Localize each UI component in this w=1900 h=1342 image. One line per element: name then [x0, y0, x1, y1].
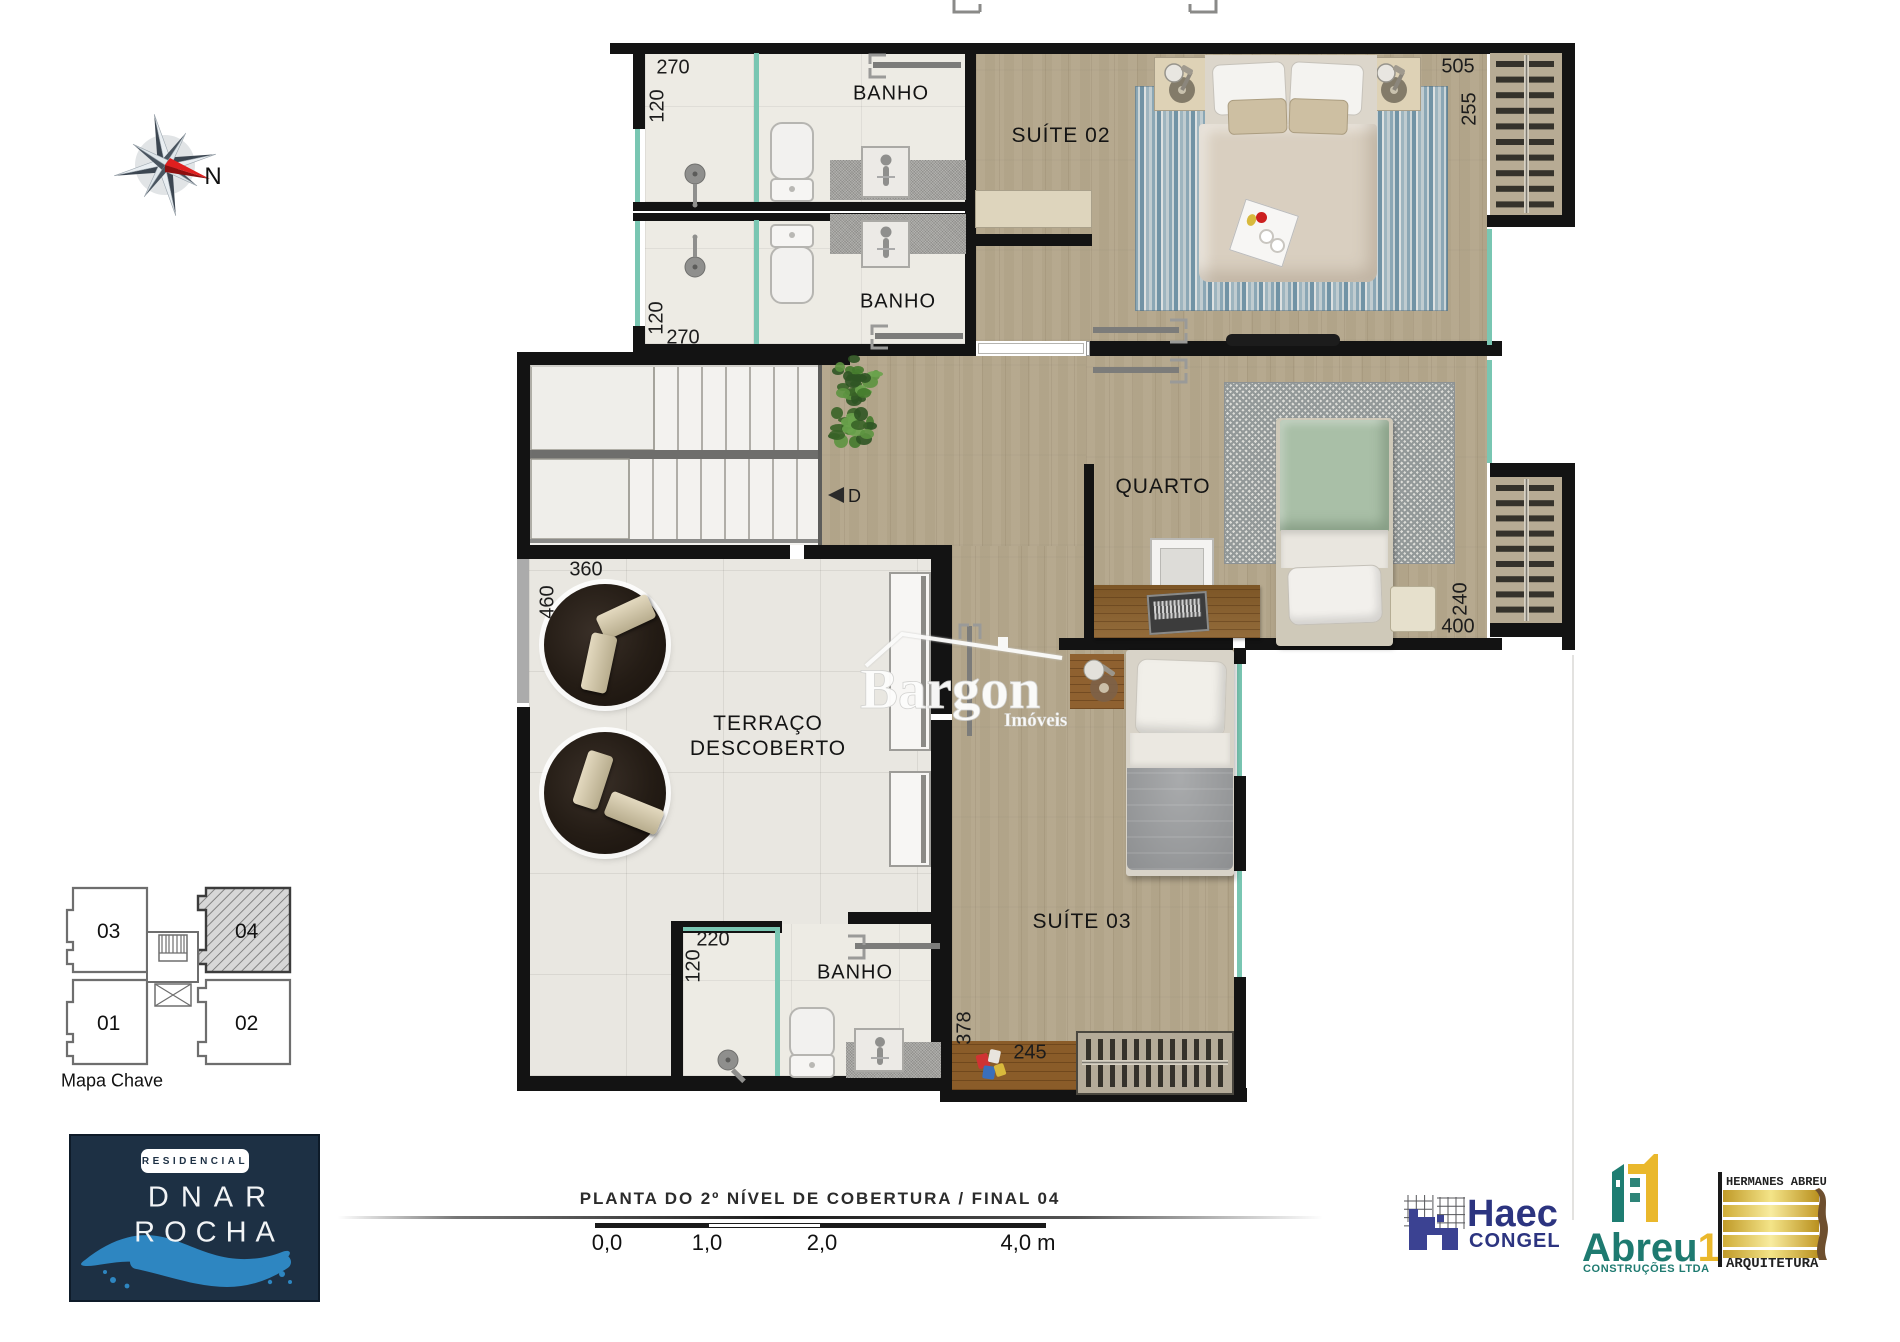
svg-text:D: D: [848, 486, 861, 506]
svg-text:Imóveis: Imóveis: [1004, 710, 1067, 731]
svg-text:04: 04: [235, 920, 259, 943]
svg-text:03: 03: [97, 920, 120, 943]
svg-text:02: 02: [235, 1012, 258, 1035]
svg-text:01: 01: [97, 1012, 120, 1035]
